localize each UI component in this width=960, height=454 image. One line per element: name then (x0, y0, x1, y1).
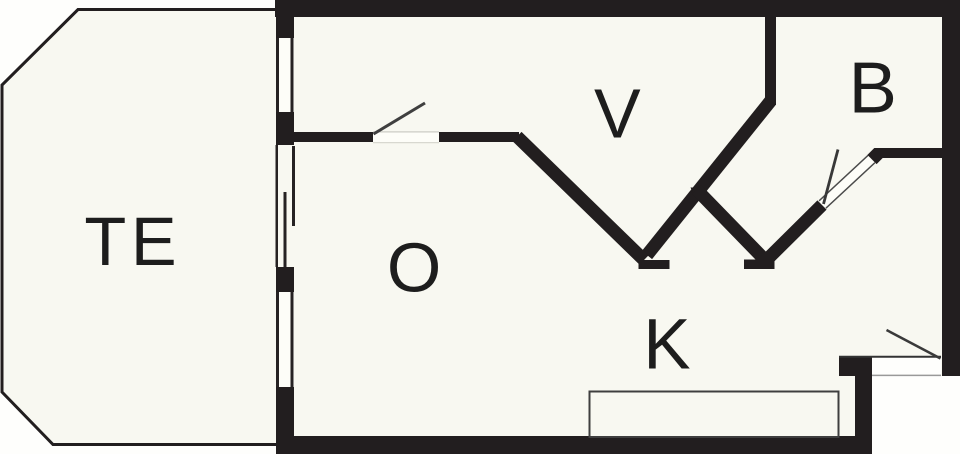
svg-text:TE: TE (84, 203, 181, 280)
svg-text:B: B (849, 48, 897, 129)
svg-text:K: K (643, 305, 690, 384)
svg-text:O: O (387, 228, 441, 306)
svg-text:V: V (594, 75, 641, 153)
